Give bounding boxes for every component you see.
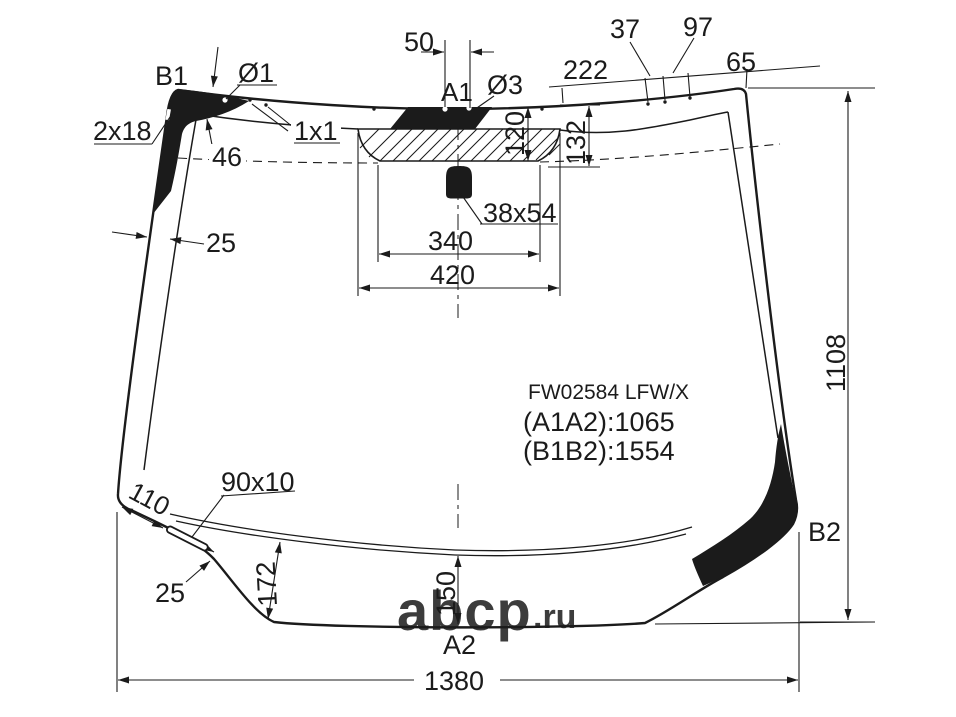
dim-420: 420	[430, 260, 475, 290]
windshield-diagram: abcp .ru B1 Ø1 50 A1 Ø3 222 37 97 65 2x1…	[0, 0, 956, 717]
windshield-drawing-page: abcp .ru B1 Ø1 50 A1 Ø3 222 37 97 65 2x1…	[0, 0, 956, 717]
label-b1: B1	[155, 61, 188, 91]
part-info: FW02584 LFW/X (A1A2):1065 (B1B2):1554	[523, 381, 689, 466]
part-code: FW02584 LFW/X	[528, 381, 689, 404]
label-a2: A2	[443, 630, 476, 660]
edge-dot	[264, 103, 267, 106]
edge-dot	[646, 102, 649, 105]
shade-band-center	[390, 107, 492, 129]
dim-38x54: 38x54	[483, 198, 557, 228]
dim-46: 46	[212, 142, 242, 172]
dim-25-top: 25	[206, 228, 236, 258]
dim-90x10: 90x10	[221, 467, 295, 497]
dim-110: 110	[124, 476, 175, 522]
edge-dot	[663, 100, 666, 103]
edge-dot	[372, 107, 375, 110]
dim-1380: 1380	[424, 666, 484, 696]
edge-dot	[540, 107, 543, 110]
slot-90x10	[166, 525, 209, 551]
hole-a1	[442, 106, 447, 111]
label-b2: B2	[808, 517, 841, 547]
dim-150: 150	[431, 571, 461, 616]
dim-340: 340	[428, 226, 473, 256]
dim-120: 120	[500, 111, 530, 156]
dim-37: 37	[610, 14, 640, 44]
dim-172: 172	[251, 561, 283, 608]
dim-1108: 1108	[821, 334, 851, 392]
mirror-mount-pad	[446, 166, 472, 199]
dim-132: 132	[561, 120, 591, 165]
label-a1: A1	[441, 77, 473, 107]
dim-65: 65	[726, 47, 756, 77]
part-diagonal-a: (A1A2):1065	[523, 407, 675, 437]
dim-97: 97	[683, 12, 713, 42]
dim-1x1: 1x1	[294, 116, 338, 146]
dim-2x18: 2x18	[93, 116, 152, 146]
dim-hole-dia1: Ø1	[238, 58, 274, 88]
part-diagonal-b: (B1B2):1554	[523, 436, 675, 466]
edge-dot	[248, 98, 251, 101]
dim-50: 50	[404, 27, 434, 57]
ceramic-band-bottom-right	[692, 424, 797, 586]
watermark: abcp .ru	[397, 579, 576, 642]
dim-222: 222	[563, 55, 608, 85]
dim-25-bottom: 25	[155, 578, 185, 608]
dim-hole-dia3: Ø3	[487, 70, 523, 100]
watermark-tld: .ru	[533, 598, 576, 636]
